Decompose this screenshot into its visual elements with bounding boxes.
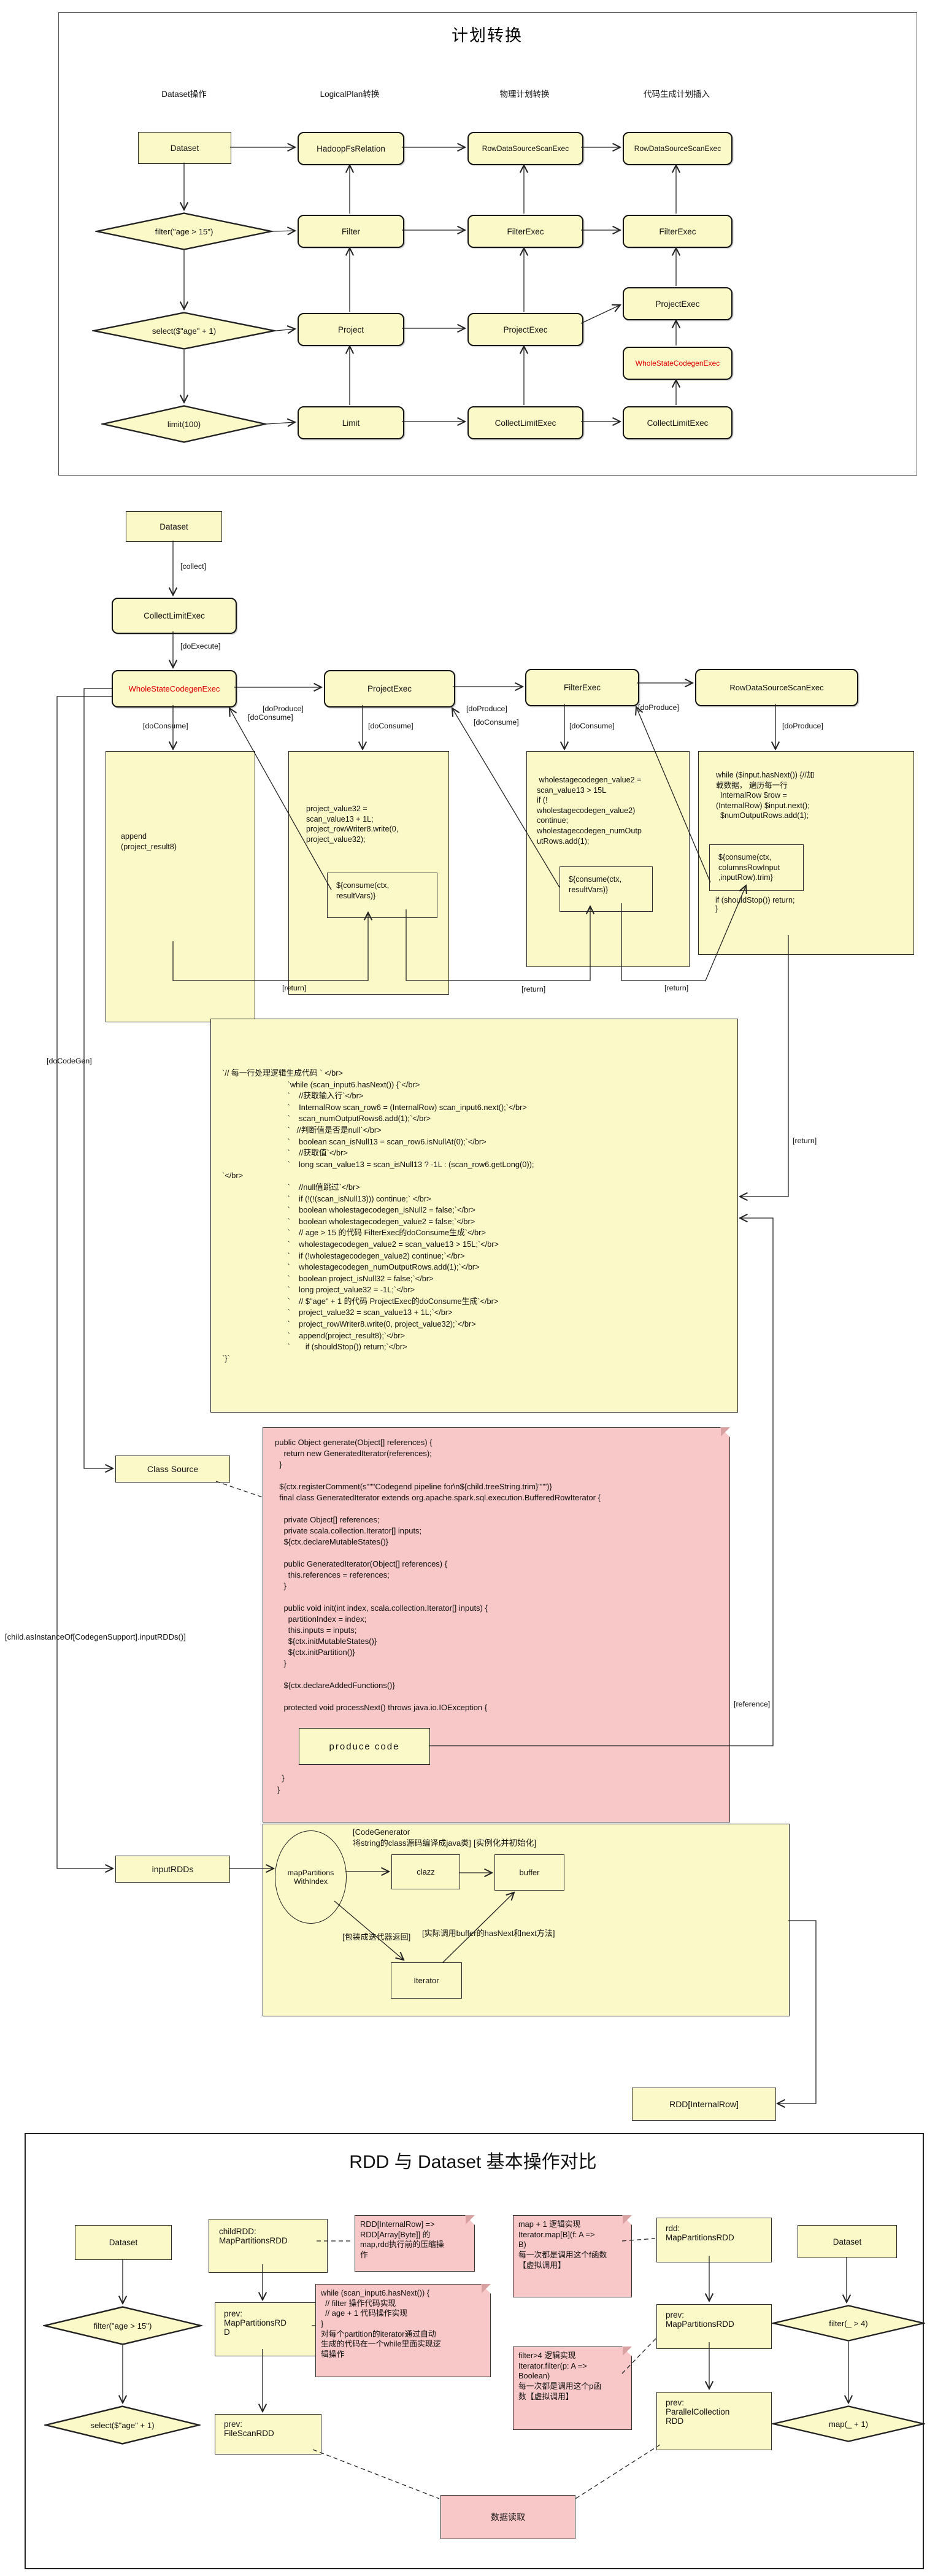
op-select-label: select($"age" + 1) [92,312,276,350]
cmp-dataset-right: Dataset [798,2225,897,2258]
node-projectexec-cg: ProjectExec [623,287,733,320]
cmp-select-left-label: select($"age" + 1) [44,2405,201,2445]
node-filterexec-cg: FilterExec [623,215,733,248]
innerbox-consume-scan: ${consume(ctx, columnsRowInput ,inputRow… [709,844,804,891]
node-project: Project [298,313,404,346]
codebox-filter: wholestagecodegen_value2 = scan_value13 … [526,751,690,967]
cmp-prev-mappartitions-right: prev: MapPartitionsRDD [656,2304,772,2349]
innerbox-consume-project: ${consume(ctx, resultVars)} [327,873,437,918]
cmp-note-compress: RDD[InternalRow] => RDD[Array[Byte]] 的 m… [355,2215,475,2272]
column-header-physicalplan: 物理计划转换 [463,87,586,99]
instantiate-note: [实例化并初始化] [474,1836,536,1848]
flow-dataset: Dataset [126,511,222,542]
node-collectlimitexec-phys: CollectLimitExec [467,406,583,439]
edge-label-docodegen: [doCodeGen] [47,1057,92,1065]
cmp-note-map: map + 1 逻辑实现 Iterator.map[B](f: A => B) … [513,2215,632,2297]
node-limit: Limit [298,406,404,439]
edge-label-doconsume-3: [doConsume] [368,722,413,730]
flow-projectexec: ProjectExec [324,670,455,708]
codebox-scan-tail: if (shouldStop()) return; } [715,896,795,913]
node-collectlimitexec-cg: CollectLimitExec [623,406,733,439]
edge-label-return-4: [return] [793,1136,817,1145]
inputrdds-node: inputRDDs [115,1856,230,1883]
node-rowdatasourcescanexec-cg: RowDataSourceScanExec [623,132,733,165]
cmp-map-right-label: map(_ + 1) [772,2405,925,2442]
flow-wholestagecodegenexec: WholeStateCodegenExec [112,670,237,708]
node-hadoopfsrelation: HadoopFsRelation [298,132,404,165]
node-filter: Filter [298,215,404,248]
column-header-dataset-ops: Dataset操作 [132,87,236,99]
column-header-codegen: 代码生成计划插入 [612,87,741,99]
op-filter-label: filter("age > 15") [95,212,273,250]
node-rowdatasourcescanexec-phys: RowDataSourceScanExec [467,132,583,165]
cmp-map-right-diamond: map(_ + 1) [772,2405,925,2442]
edge-label-collect: [collect] [180,562,206,571]
edge-label-doproduce-1: [doProduce] [263,704,304,713]
cmp-prev-filescanrdd: prev: FileScanRDD [215,2414,321,2455]
cmp-filter-right-label: filter(_ > 4) [772,2305,925,2342]
diagram-canvas: 计划转换 Dataset操作 LogicalPlan转换 物理计划转换 代码生成… [0,0,946,2576]
cmp-filter-right-diamond: filter(_ > 4) [772,2305,925,2342]
call-buffer-note: [实际调用buffer的hasNext和next方法] [422,1927,555,1938]
node-filterexec-phys: FilterExec [467,215,583,248]
edge-label-return-2: [return] [521,985,545,993]
clazz-node: clazz [391,1854,460,1889]
cmp-select-left-diamond: select($"age" + 1) [44,2405,201,2445]
mappartitionswithindex-ellipse: mapPartitions WithIndex [275,1830,347,1924]
codebox-append: append (project_result8) [106,751,255,1022]
cmp-dataset-left: Dataset [75,2225,172,2260]
codegen-runtime-box [263,1824,790,2016]
plan-transform-title: 计划转换 [58,22,916,46]
op-select-diamond: select($"age" + 1) [92,312,276,350]
edge-label-inputrdds-call: [child.asInstanceOf[CodegenSupport].inpu… [5,1632,186,1641]
cmp-data-read: 数据读取 [440,2495,575,2539]
cmp-prev-parallelcollection: prev: ParallelCollection RDD [656,2392,772,2450]
edge-label-doconsume-1: [doConsume] [143,722,188,730]
node-wholestagecodegenexec-cg: WholeStateCodegenExec [623,347,733,380]
buffer-node: buffer [494,1854,564,1891]
cmp-rdd-mappartitions: rdd: MapPartitionsRDD [656,2218,772,2262]
edge-label-doproduce-4: [doProduce] [782,722,823,730]
edge-label-return-3: [return] [664,984,688,992]
generated-class-code-bottom: } } [277,1772,400,1795]
wrap-iterator-note: [包装成迭代器返回] [342,1930,410,1942]
flow-filterexec: FilterExec [525,669,639,706]
edge-label-return-1: [return] [282,984,306,992]
cmp-prev-mappartitions-left: prev: MapPartitionsRD D [215,2302,321,2356]
edge-label-doconsume-2: [doConsume] [248,713,293,722]
flow-rowdatasourcescanexec: RowDataSourceScanExec [695,669,858,706]
cmp-note-filter: filter>4 逻辑实现 Iterator.filter(p: A => Bo… [513,2347,632,2430]
cmp-filter-left-label: filter("age > 15") [43,2306,202,2345]
edge-label-doconsume-4: [doConsume] [474,718,519,727]
innerbox-consume-filter: ${consume(ctx, resultVars)} [560,866,653,912]
edge-label-doproduce-2: [doProduce] [466,704,507,713]
produce-code-placeholder: produce code [299,1728,430,1765]
node-dataset: Dataset [138,132,231,164]
generated-class-code-top: public Object generate(Object[] referenc… [275,1437,717,1713]
cmp-filter-left-diamond: filter("age > 15") [43,2306,202,2345]
op-filter-diamond: filter("age > 15") [95,212,273,250]
class-source-node: Class Source [115,1456,230,1483]
edge-label-doconsume-5: [doConsume] [569,722,615,730]
column-header-logicalplan: LogicalPlan转换 [288,87,411,99]
edge-label-reference: [reference] [734,1700,770,1708]
cmp-childrdd: childRDD: MapPartitionsRDD [209,2219,328,2273]
op-limit-label: limit(100) [101,405,267,443]
edge-label-doproduce-3: [doProduce] [638,703,679,712]
op-limit-diamond: limit(100) [101,405,267,443]
produce-code-text: `// 每一行处理逻辑生成代码 ` </br> `while (scan_inp… [222,1068,725,1364]
edge-label-doexecute: [doExecute] [180,642,220,650]
iterator-node: Iterator [391,1962,462,1999]
codegenerator-note: [CodeGenerator 将string的class源码编译成java类] [353,1827,471,1848]
node-projectexec-phys: ProjectExec [467,313,583,346]
rdd-internalrow-node: RDD[InternalRow] [632,2088,776,2121]
cmp-note-while: while (scan_input6.hasNext()) { // filte… [315,2284,491,2377]
flow-collectlimitexec: CollectLimitExec [112,598,237,634]
rdd-dataset-title: RDD 与 Dataset 基本操作对比 [25,2146,921,2173]
